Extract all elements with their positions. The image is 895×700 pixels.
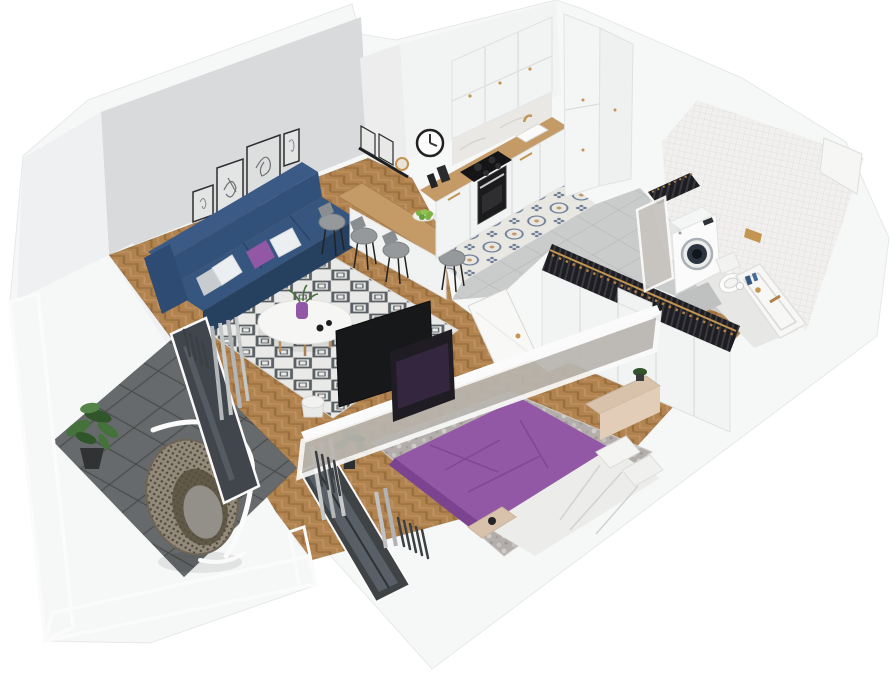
toilet-paper — [737, 283, 744, 290]
floor-plan-3d — [0, 0, 895, 700]
tub-faucet — [755, 287, 761, 293]
purple-vase — [296, 302, 308, 319]
mirror-panel — [637, 197, 673, 291]
tall-cabinets — [564, 14, 633, 197]
storage-basket — [302, 396, 324, 417]
door-handle — [516, 334, 521, 339]
round-mirror — [396, 158, 408, 170]
apartment-render — [0, 0, 895, 700]
wall-clock — [417, 130, 443, 156]
